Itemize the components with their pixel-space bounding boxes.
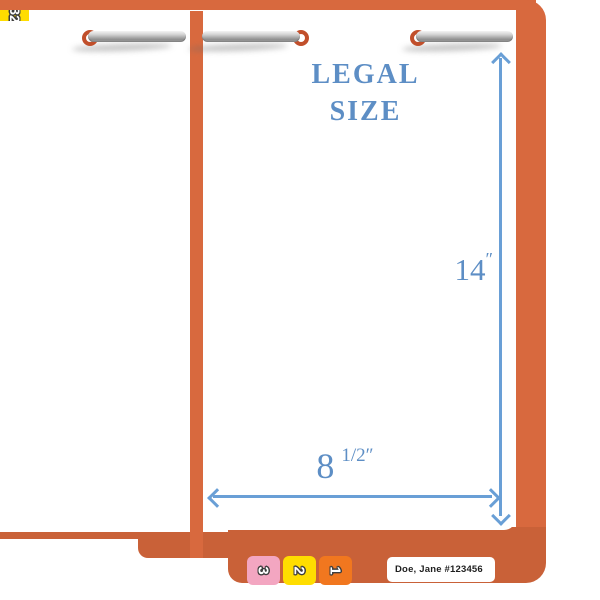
patient-name-label: Doe, Jane #123456 — [387, 557, 495, 582]
fastener-prong-icon — [202, 31, 300, 42]
width-value: 8 — [316, 446, 334, 486]
width-dimension-line — [213, 495, 492, 498]
height-dimension-label: 14″ — [428, 252, 493, 288]
index-tab-1-number: 1 — [327, 566, 344, 574]
page-title: LEGAL SIZE — [283, 56, 448, 130]
inch-mark: ″ — [366, 445, 374, 466]
inch-mark: ″ — [486, 249, 494, 269]
height-value: 14 — [455, 252, 486, 287]
fastener-prong-icon — [416, 31, 513, 42]
fastener-prong-icon — [88, 31, 186, 42]
width-dimension-label: 81/2″ — [260, 445, 430, 487]
height-dimension-line — [499, 58, 502, 516]
folder-product-image: LEGAL SIZE 14″ 81/2″ 3 2 1 Doe, Jane #12… — [0, 0, 600, 600]
title-line-1: LEGAL — [283, 56, 448, 93]
folder-left-panel — [0, 21, 190, 532]
folder-right-edge — [516, 0, 546, 572]
folder-top-edge — [0, 0, 536, 10]
index-tab-3-number: 3 — [255, 566, 272, 574]
width-fraction: 1/2 — [341, 445, 365, 466]
index-tab-2-number: 2 — [291, 566, 308, 574]
title-line-2: SIZE — [283, 93, 448, 130]
index-tab-1: 1 — [319, 556, 352, 585]
folder-bottom-edge-left — [0, 532, 145, 539]
index-tab-3: 3 — [247, 556, 280, 585]
index-tab-2: 2 — [283, 556, 316, 585]
folder-spine — [190, 11, 203, 558]
